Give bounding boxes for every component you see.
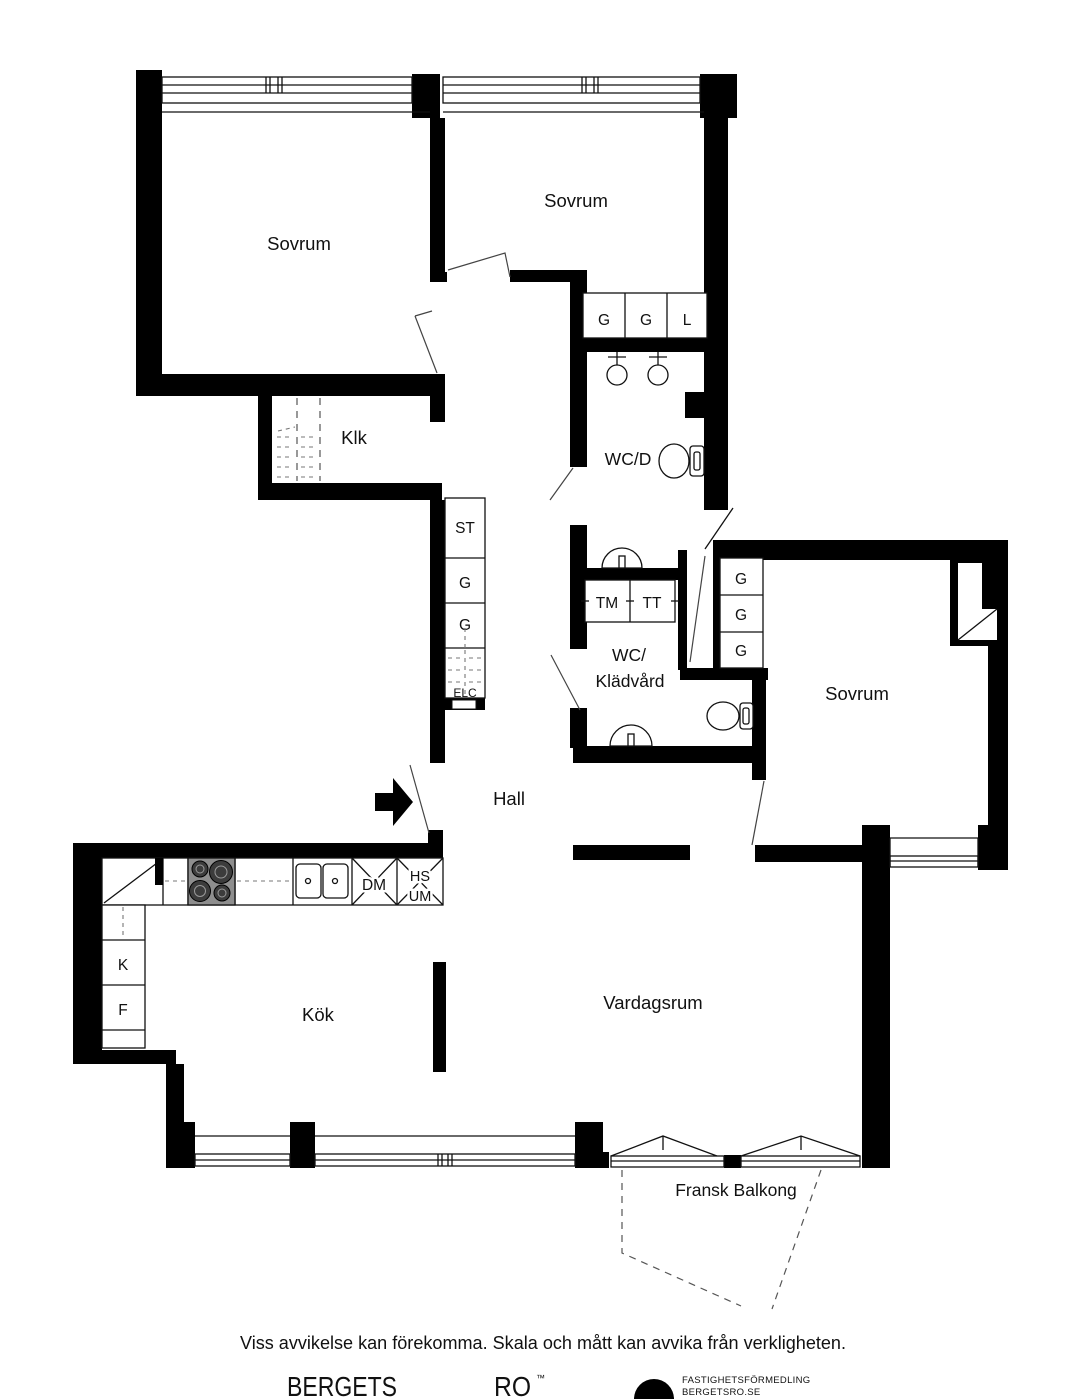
stove-icon bbox=[188, 858, 235, 905]
room-label-french-balcony: Fransk Balkong bbox=[675, 1180, 797, 1200]
wardrobes-bedroom3: G G G bbox=[720, 558, 763, 668]
washer-dryer-icons: TM TT bbox=[581, 580, 679, 622]
wardrobe-label: G bbox=[640, 312, 652, 329]
disclaimer-text: Viss avvikelse kan förekomma. Skala och … bbox=[240, 1333, 846, 1353]
basin-icon bbox=[607, 352, 627, 385]
dishwasher-label: DM bbox=[362, 877, 386, 894]
wardrobes-bedroom2: G G L bbox=[583, 293, 707, 338]
room-label-wc-laundry-line2: Klädvård bbox=[595, 671, 664, 691]
room-label-living-room: Vardagsrum bbox=[603, 992, 702, 1013]
room-label-hall: Hall bbox=[493, 788, 525, 809]
room-label-kitchen: Kök bbox=[302, 1004, 335, 1025]
room-label-wc-laundry-line1: WC/ bbox=[612, 645, 646, 665]
linen-cabinet-label: L bbox=[683, 312, 692, 329]
agency-line1: FASTIGHETSFÖRMEDLING bbox=[682, 1375, 810, 1386]
toilet-icon bbox=[659, 444, 704, 478]
wardrobe-label: G bbox=[735, 571, 747, 588]
agency-line2: BERGETSRO.SE bbox=[682, 1387, 761, 1398]
trademark-symbol: ™ bbox=[536, 1373, 545, 1383]
room-label-bedroom3: Sovrum bbox=[825, 683, 889, 704]
cleaning-cabinet-label: ST bbox=[455, 520, 475, 537]
room-label-bedroom2: Sovrum bbox=[544, 190, 608, 211]
wardrobe-label: G bbox=[459, 575, 471, 592]
floor-plan-page: G G L ST G G ELC G G G bbox=[0, 0, 1082, 1400]
tall-unit-top-label: HS bbox=[410, 869, 430, 885]
fridge-label: K bbox=[118, 957, 129, 974]
corridor-cabinets: ST G G ELC bbox=[445, 498, 485, 700]
background bbox=[0, 0, 1082, 1400]
room-label-bedroom1: Sovrum bbox=[267, 233, 331, 254]
fridge-freezer-column: K F bbox=[102, 905, 145, 1048]
toilet-icon bbox=[707, 702, 753, 730]
brand-name-bergets: BERGETS bbox=[287, 1371, 397, 1400]
room-label-closet: Klk bbox=[341, 427, 367, 448]
washing-machine-label: TM bbox=[596, 595, 618, 612]
electrical-cabinet-label: ELC bbox=[453, 686, 477, 700]
tumble-dryer-label: TT bbox=[643, 595, 662, 612]
kitchen-counter: DM HS UM bbox=[102, 858, 443, 905]
wardrobe-label: G bbox=[735, 643, 747, 660]
wardrobe-label: G bbox=[735, 607, 747, 624]
freezer-label: F bbox=[118, 1002, 127, 1019]
room-label-wc-shower: WC/D bbox=[605, 449, 652, 469]
tall-unit-bottom-label: UM bbox=[409, 889, 432, 905]
brand-name-ro: RO bbox=[494, 1371, 531, 1400]
floor-plan: G G L ST G G ELC G G G bbox=[0, 0, 1082, 1400]
basin-icon bbox=[648, 352, 668, 385]
wardrobe-label: G bbox=[598, 312, 610, 329]
